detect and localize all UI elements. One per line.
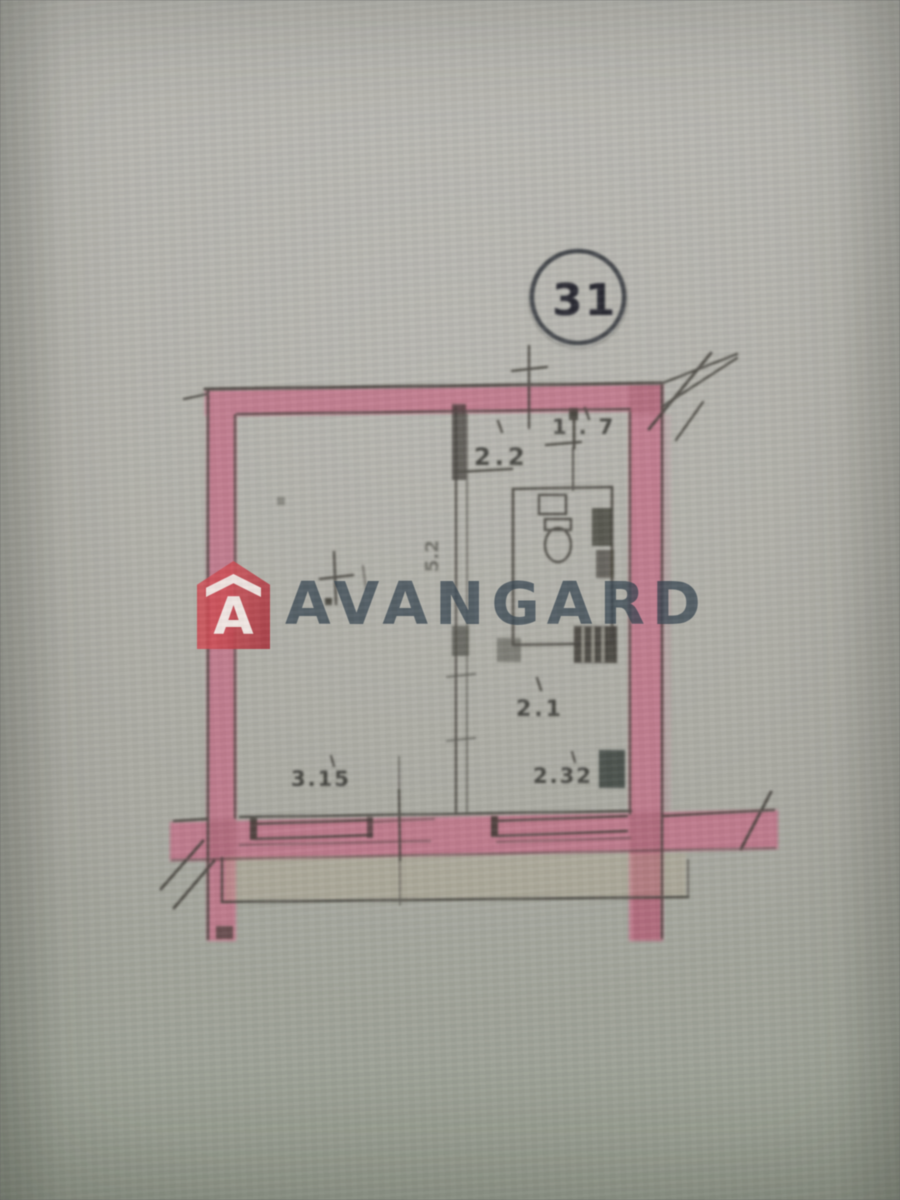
logo-letter: A (197, 589, 270, 645)
agency-watermark: A AVANGARD (0, 0, 900, 1200)
house-logo-icon: A (197, 561, 270, 649)
floor-plan-photo: 31 2.2 1.7 5.2 2.1 3.15 2.32 A AVANGARD (0, 0, 900, 1200)
brand-text: AVANGARD (285, 569, 708, 638)
